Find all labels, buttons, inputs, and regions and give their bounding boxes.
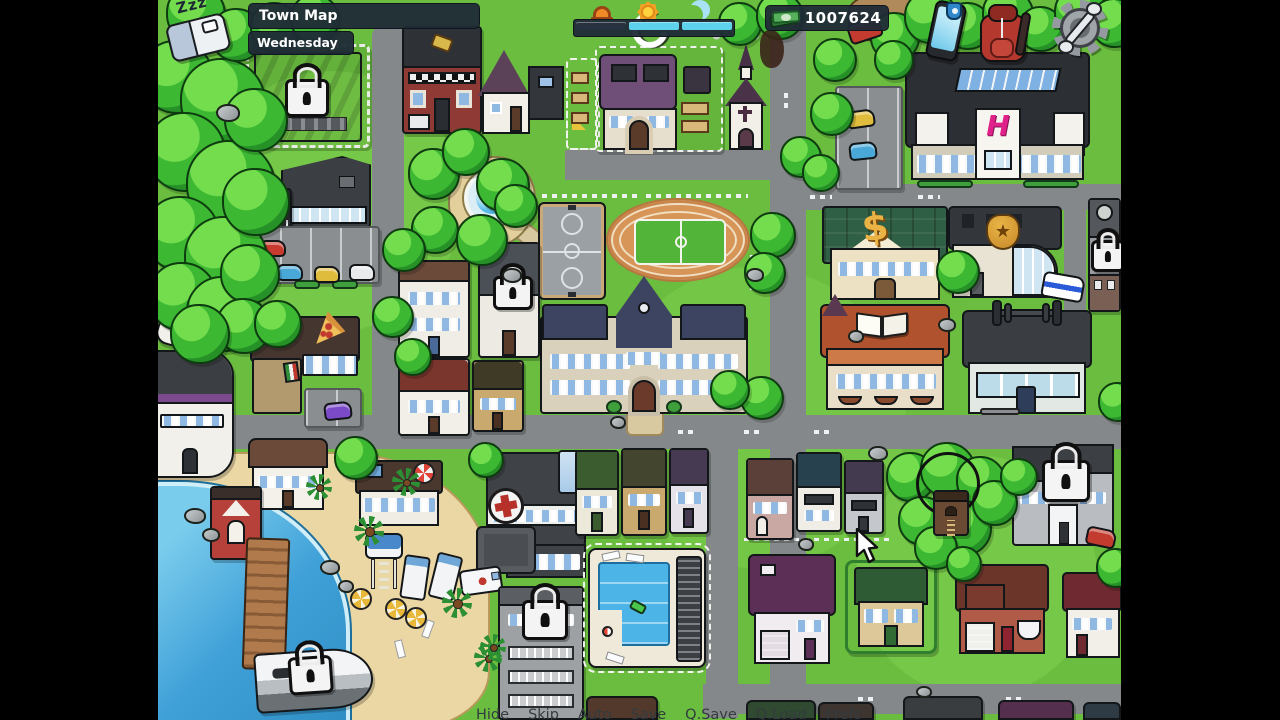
belfry	[740, 66, 752, 80]
inventory-button[interactable]	[974, 4, 1032, 66]
school-left-roof	[542, 304, 608, 340]
rock-icon	[868, 446, 888, 461]
home-windows	[647, 116, 669, 128]
sun-core	[641, 5, 655, 19]
palm-tree-icon	[354, 516, 384, 546]
door	[428, 416, 440, 434]
bench	[980, 408, 1020, 415]
ambulance-cross	[477, 576, 487, 586]
garage-door	[965, 622, 995, 652]
tree-icon	[874, 40, 914, 80]
palm-tree-icon	[392, 468, 420, 496]
hedge	[1023, 180, 1079, 188]
windows	[1072, 618, 1112, 630]
purple-roof-house[interactable]	[669, 448, 709, 534]
rock-icon	[184, 508, 206, 524]
home-roof	[599, 54, 677, 110]
windows	[408, 318, 460, 331]
window	[1107, 280, 1115, 290]
rock-icon	[320, 560, 340, 575]
porch-door	[1059, 522, 1069, 544]
dead-tree	[760, 30, 784, 68]
window	[490, 102, 502, 114]
library-building[interactable]	[820, 296, 950, 414]
tree-icon	[802, 154, 840, 192]
sunrise-dome	[593, 6, 611, 17]
tree-icon	[813, 38, 857, 82]
road-dashes	[678, 430, 698, 434]
star-glyph: ★	[995, 221, 1011, 242]
road-dashes	[810, 195, 832, 199]
padlock-icon	[1042, 460, 1090, 502]
church-door	[738, 128, 754, 148]
boathouse-door	[227, 520, 245, 544]
department-store-building[interactable]	[281, 156, 371, 228]
pizzeria-windows	[302, 354, 358, 376]
rock-icon	[746, 268, 764, 282]
door	[1076, 634, 1088, 656]
tree-icon	[750, 212, 796, 258]
road-dashes	[744, 430, 764, 434]
garage-door	[760, 630, 790, 660]
lounger	[605, 651, 625, 664]
backpack-pocket	[990, 38, 1014, 58]
ladder	[947, 520, 955, 536]
school-tower-windows	[626, 352, 662, 365]
cross-icon	[743, 106, 747, 122]
bank-windows	[838, 262, 934, 276]
gable-roof	[623, 450, 665, 488]
checker-band	[408, 72, 476, 84]
skylight	[611, 64, 637, 82]
windows	[408, 292, 460, 305]
windows	[753, 502, 787, 514]
hoop	[568, 205, 576, 210]
tree-icon	[1000, 458, 1038, 496]
time-segment-evening	[682, 22, 732, 30]
entrance-doors	[984, 150, 1012, 170]
roof-hatch	[339, 176, 355, 188]
soccer-field	[634, 219, 726, 265]
door	[510, 106, 522, 132]
town-map: H $ ★	[158, 0, 1121, 720]
quickmenu-qsave[interactable]: Q.Save	[685, 707, 737, 720]
beach-ball	[602, 626, 613, 637]
road-vertical-bottom	[706, 432, 738, 718]
beach-umbrella-icon	[350, 588, 372, 610]
club-door	[182, 448, 198, 474]
windows	[894, 609, 918, 623]
rock-icon	[338, 580, 354, 593]
house-wall	[482, 92, 530, 134]
cabin	[399, 554, 431, 601]
road-top-horizontal	[565, 150, 775, 180]
olive-house[interactable]	[472, 360, 524, 432]
rock-icon	[848, 330, 864, 343]
balcony-row	[508, 646, 574, 660]
garden-shed	[683, 66, 711, 94]
letterbox-stage: H $ ★	[0, 0, 1280, 720]
window	[410, 90, 426, 108]
gable-roof	[854, 567, 928, 605]
rock-icon	[216, 104, 240, 122]
green-roof-house[interactable]	[575, 450, 619, 536]
quick-menu: Hide Skip Auto Save Q.Save Q.Load Prefs	[476, 707, 861, 720]
padlock-icon	[285, 79, 329, 117]
time-of-day-bar	[573, 19, 735, 37]
road-dashes	[858, 697, 878, 701]
bay-window	[1017, 620, 1041, 640]
tattoo-door	[434, 98, 450, 132]
gym-lower	[968, 362, 1086, 414]
shop-window	[408, 114, 430, 130]
quickmenu-prefs[interactable]: Prefs	[826, 707, 862, 720]
italian-flag	[283, 361, 301, 383]
quickmenu-skip[interactable]: Skip	[528, 707, 559, 720]
white-car	[349, 264, 375, 281]
tree-icon	[222, 168, 290, 236]
cross-bar-v	[500, 494, 512, 517]
lounge-deck	[676, 556, 702, 662]
bush	[666, 400, 682, 414]
sports-fence	[542, 194, 642, 198]
gable	[222, 500, 250, 516]
club-purple-band	[158, 394, 232, 404]
money-value: 1007624	[804, 9, 888, 27]
awning	[838, 396, 862, 405]
skylight	[643, 64, 669, 82]
public-pool[interactable]	[588, 548, 706, 668]
tree-icon	[394, 338, 432, 376]
palm-tree-icon	[306, 474, 332, 500]
rock-icon	[916, 686, 932, 698]
beach-umbrella-icon	[385, 598, 407, 620]
red-door	[1001, 626, 1014, 652]
dumbbell-plate	[1052, 300, 1062, 326]
road-dashes	[918, 195, 940, 199]
dumbbell-plate	[1042, 303, 1050, 323]
gable-roof	[798, 454, 840, 488]
planter-box	[571, 112, 589, 124]
quickmenu-save[interactable]: Save	[631, 707, 667, 720]
padlock-icon	[1091, 240, 1121, 272]
quickmenu-qload[interactable]: Q.Load	[756, 707, 807, 720]
school-door	[632, 380, 656, 412]
windows	[582, 496, 612, 508]
pizzeria-parking	[304, 388, 362, 428]
moon-icon	[690, 0, 710, 20]
open-book-icon	[856, 310, 910, 340]
house-gable-roof	[478, 50, 530, 96]
door	[591, 512, 603, 532]
awning	[874, 396, 898, 405]
bottom-roof	[903, 696, 983, 720]
windows	[676, 492, 702, 504]
green-door	[884, 625, 898, 647]
wrench-head	[1058, 40, 1074, 54]
gable-roof	[474, 362, 522, 390]
door	[492, 412, 503, 430]
mouse-cursor	[854, 528, 882, 566]
tree-icon	[372, 296, 414, 338]
rock-icon	[202, 528, 220, 542]
neighbor-house-building[interactable]	[478, 50, 564, 136]
gym-building[interactable]	[962, 300, 1092, 416]
dumbbell-plate	[1004, 303, 1012, 323]
cross-icon-bar	[738, 110, 752, 114]
windows	[408, 400, 460, 413]
padlock-icon	[287, 655, 334, 696]
day-label: Wednesday	[249, 32, 353, 54]
windshield	[491, 571, 500, 580]
purple-car	[323, 401, 353, 422]
cash-icon	[766, 7, 804, 29]
roof-vent	[962, 214, 974, 228]
bank-building[interactable]: $	[822, 206, 948, 302]
arch-door	[756, 516, 768, 536]
home-arch-door	[629, 120, 649, 150]
locked-tower-building[interactable]	[1088, 198, 1121, 312]
porch	[1048, 504, 1078, 546]
dumbbell-icon	[992, 300, 1062, 326]
star-badge-icon: ★	[986, 214, 1020, 250]
road-dashes	[784, 88, 788, 108]
window	[456, 90, 472, 108]
tree-icon	[936, 250, 980, 294]
padlock-icon	[522, 600, 568, 640]
player-home-building[interactable]	[595, 46, 723, 152]
court-key-circle	[561, 213, 583, 235]
library-wall	[826, 364, 944, 410]
dumbbell-plate	[992, 300, 1002, 326]
mall-h-logo: H	[977, 112, 1019, 140]
location-title-bar: Town Map	[248, 3, 480, 29]
school-right-roof	[680, 304, 746, 340]
time-segment-afternoon	[629, 22, 679, 30]
windows	[628, 494, 660, 506]
time-segment-morning	[576, 22, 626, 30]
backpack-zipper	[1001, 18, 1003, 38]
field-circle	[675, 236, 687, 248]
gable-roof	[748, 460, 792, 496]
dormer	[760, 564, 776, 576]
road-dashes	[814, 430, 834, 434]
leg	[393, 559, 397, 589]
apartment-building[interactable]	[498, 586, 584, 720]
mall-building[interactable]: H	[905, 52, 1090, 188]
tree-icon	[494, 184, 538, 228]
tattoo-parlor-building[interactable]	[402, 26, 482, 134]
pier[interactable]	[242, 537, 291, 670]
treehouse-roof	[935, 492, 967, 502]
brown-roof-house[interactable]	[746, 458, 794, 540]
treehouse[interactable]	[933, 490, 969, 536]
bank-dollar-sign: $	[848, 205, 902, 248]
boathouse-roof	[212, 488, 260, 500]
garage-window	[538, 76, 554, 88]
cash-oval	[781, 14, 791, 21]
purple-mansion[interactable]	[748, 554, 836, 670]
rock-icon	[798, 538, 814, 551]
treehouse-window	[945, 506, 957, 516]
sunrise-icon	[591, 4, 613, 20]
rock-icon	[610, 416, 626, 429]
blue-car	[848, 141, 878, 162]
day-bar: Wednesday	[248, 31, 354, 55]
settings-button[interactable]	[1050, 0, 1112, 58]
palm-tree-icon	[442, 588, 472, 618]
dark-window-band	[851, 500, 877, 511]
door	[638, 510, 650, 530]
tree-icon	[710, 370, 750, 410]
mall-skylight	[954, 68, 1061, 92]
storefront-windows	[289, 206, 367, 224]
school-windows	[550, 380, 630, 395]
windows	[796, 620, 824, 632]
gable-roof	[671, 450, 707, 486]
door	[502, 330, 516, 356]
home-garden-fence	[566, 58, 598, 150]
court-center-circle	[564, 243, 580, 259]
slate-roof-house[interactable]	[844, 460, 884, 534]
hedge	[917, 180, 973, 188]
planter-box	[681, 102, 709, 115]
windows	[804, 510, 834, 521]
green-gable-house[interactable]	[845, 560, 937, 654]
door	[683, 508, 694, 528]
bush	[606, 400, 622, 414]
door	[282, 490, 294, 508]
rock-icon	[938, 318, 956, 332]
tree-icon	[810, 92, 854, 136]
planter-box	[571, 72, 589, 84]
running-track[interactable]	[606, 198, 750, 282]
balcony-row	[508, 670, 574, 684]
ladder	[379, 561, 389, 589]
trophy-dot	[952, 8, 958, 14]
teal-roof-house[interactable]	[796, 452, 842, 532]
windows	[480, 398, 516, 410]
roof	[248, 438, 328, 468]
garage-block	[528, 66, 564, 120]
lounger	[601, 550, 620, 562]
awning	[910, 396, 934, 405]
school-windows	[658, 354, 738, 369]
tree-icon	[254, 300, 302, 348]
gable-roof	[846, 462, 882, 494]
strip-club-building[interactable]	[158, 350, 234, 478]
location-label: Town Map	[249, 4, 479, 28]
tree-icon	[468, 442, 504, 478]
wrench-head	[1086, 2, 1102, 16]
palm-tree-icon	[480, 634, 506, 660]
tower-dial	[1096, 204, 1113, 221]
bank-front	[830, 248, 940, 300]
school-clock	[638, 302, 650, 314]
leg	[371, 559, 375, 589]
wall	[1066, 608, 1120, 658]
club-windows	[160, 414, 224, 428]
backpack-top	[988, 4, 1018, 22]
sports-fence	[646, 194, 748, 198]
gable-roof	[577, 452, 617, 490]
windows	[864, 609, 888, 623]
tree-icon	[946, 546, 982, 582]
school-windows	[550, 354, 630, 369]
bottom-roof	[1083, 702, 1121, 720]
door	[804, 638, 816, 660]
window	[1094, 280, 1102, 290]
quickmenu-auto[interactable]: Auto	[578, 707, 612, 720]
dark-window-band	[804, 494, 834, 505]
windows	[363, 498, 435, 512]
planter-box	[571, 92, 589, 104]
arched-windows	[836, 374, 936, 389]
planter-box	[681, 120, 709, 133]
rock-icon	[502, 268, 522, 283]
tree-icon	[382, 228, 426, 272]
book-right-page	[882, 312, 908, 338]
quickmenu-hide[interactable]: Hide	[476, 707, 509, 720]
tree-icon	[334, 436, 378, 480]
yellow-car	[314, 266, 340, 283]
money-bar: 1007624	[765, 5, 889, 31]
balcony-row	[508, 694, 574, 708]
olive-roof-house[interactable]	[621, 448, 667, 536]
blue-car	[277, 264, 303, 281]
tree-icon	[220, 244, 280, 304]
tree-icon	[170, 304, 230, 364]
trophy-icon	[946, 2, 962, 20]
mall-entrance: H	[975, 108, 1021, 180]
bottom-roof	[998, 700, 1074, 720]
